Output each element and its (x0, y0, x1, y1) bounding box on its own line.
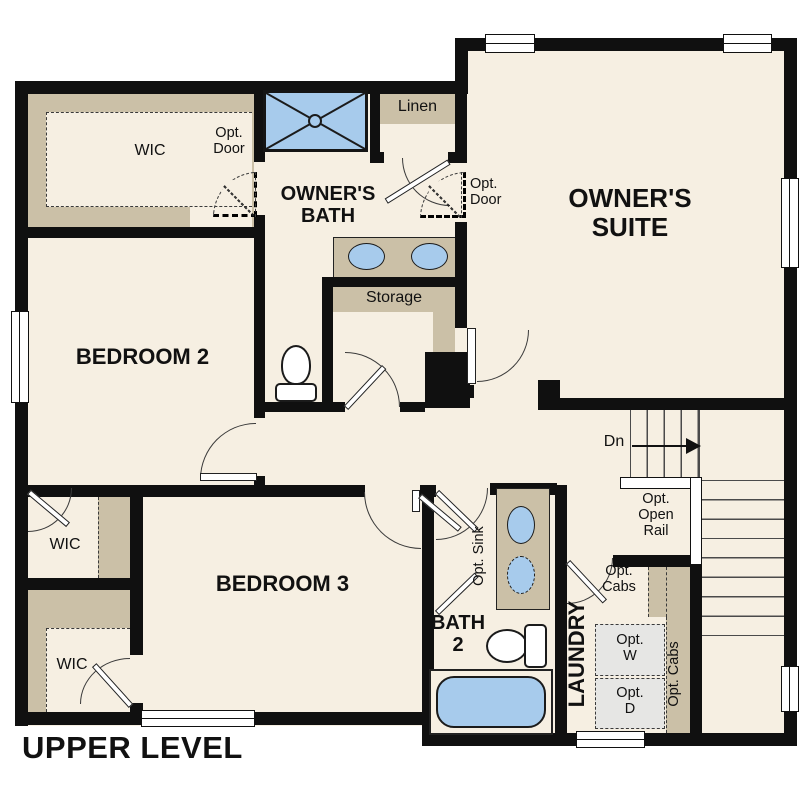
wall-wic-column-right-a (130, 485, 143, 655)
wall-vanity-bottom (322, 277, 462, 287)
wic1-label: WIC (115, 142, 185, 160)
owners-suite-label: OWNER'S SUITE (535, 184, 725, 242)
opt-cabs-vertical-text: Opt. Cabs (666, 641, 682, 706)
owners-sink-left (348, 243, 385, 270)
opt-sink-label-text: Opt. Sink (471, 526, 487, 586)
plan-title: UPPER LEVEL (22, 731, 322, 766)
wic3-shelving-top (28, 590, 130, 628)
stairs-down-label: Dn (598, 433, 630, 451)
laundry-label: LAUNDRY (565, 574, 591, 734)
window-bedroom2-left (11, 311, 29, 403)
owners-bath-line1: OWNER'S (268, 183, 388, 205)
bedroom3-label: BEDROOM 3 (185, 572, 380, 597)
chase-block (425, 352, 470, 408)
wall-bath-left-b (254, 215, 265, 238)
storage-label: Storage (336, 289, 452, 307)
opt-door2-line2: Door (470, 192, 528, 208)
wic3-label: WIC (45, 656, 99, 674)
bath2-opt-sink (507, 556, 535, 594)
shower (263, 90, 368, 152)
opt-open-rail-band-vertical (690, 477, 702, 565)
wic3-label-text: WIC (56, 656, 87, 673)
dn-label-text: Dn (604, 433, 624, 450)
bath2-label: BATH 2 (420, 612, 496, 657)
linen-label-text: Linen (398, 98, 437, 115)
owners-suite-line1: OWNER'S (535, 184, 725, 213)
storage-label-text: Storage (366, 289, 422, 306)
wall-wic2-bottom (15, 578, 143, 590)
owners-bath-label: OWNER'S BATH (268, 183, 388, 228)
bedroom2-label: BEDROOM 2 (45, 345, 240, 370)
wall-suite-bottom (540, 398, 797, 410)
opt-cabs-vertical-label: Opt. Cabs (666, 604, 690, 744)
opt-sink-label: Opt. Sink (471, 486, 495, 626)
opt-door-line2: Door (200, 141, 258, 157)
owners-sink-right (411, 243, 448, 270)
opt-d-line1: Opt. (595, 685, 665, 701)
opt-door2-line1: Opt. (470, 176, 528, 192)
window-suite-right (781, 178, 799, 268)
floor-plan-upper-level: WIC Opt. Door OWNER'S BATH Linen Opt. Do… (0, 0, 810, 810)
wic1-opt-door-leaf (255, 172, 256, 217)
wall-bedroom2-right (254, 238, 265, 418)
opt-dryer-label: Opt. D (595, 685, 665, 717)
wall-right-outer (784, 38, 797, 746)
wic2-label-text: WIC (49, 536, 80, 553)
plan-title-text: UPPER LEVEL (22, 730, 243, 765)
wall-top-left-outer (15, 81, 460, 94)
opt-w-line1: Opt. (595, 632, 665, 648)
wall-wic1-bottom (15, 227, 265, 238)
wall-suite-top-jog (455, 38, 468, 94)
wall-left-outer (15, 81, 28, 726)
window-stair-landing-right (781, 666, 799, 712)
opt-open-rail-line1: Opt. (621, 491, 691, 507)
bedroom3-door-threshold (412, 490, 420, 512)
opt-cabs-laundry-label: Opt. Cabs (590, 563, 648, 595)
wall-linen-bottom-left (370, 152, 384, 163)
bedroom2-label-text: BEDROOM 2 (76, 344, 209, 369)
wic2-label: WIC (38, 536, 92, 554)
bath2-sink (507, 506, 535, 544)
wic2-shelving (98, 497, 130, 578)
bedroom2-door-leaf (200, 473, 257, 481)
storage-shelf-strip (433, 312, 455, 352)
wall-suite-left-b (455, 222, 467, 328)
shower-glass-icon (266, 93, 365, 149)
wic2-shelf-dashed-line (98, 497, 99, 578)
owners-toilet-tank (275, 383, 317, 402)
opt-open-rail-line2: Open (621, 507, 691, 523)
stairs-direction-arrow-icon (686, 438, 701, 454)
wic3-shelving-left (28, 628, 46, 712)
opt-open-rail-label: Opt. Open Rail (621, 491, 691, 540)
window-suite-top-left (485, 34, 535, 53)
opt-open-rail-line3: Rail (621, 523, 691, 539)
bath2-toilet-tank (524, 624, 547, 668)
owners-bath-line2: BATH (268, 205, 388, 227)
bath2-line2: 2 (420, 634, 496, 656)
opt-w-line2: W (595, 648, 665, 664)
owners-toilet-bowl (281, 345, 311, 385)
opt-cabs-line1: Opt. (590, 563, 648, 579)
window-bedroom3-bottom (141, 710, 255, 727)
suite-opt-door-label: Opt. Door (470, 176, 528, 208)
laundry-label-text: LAUNDRY (564, 601, 589, 708)
opt-d-line2: D (595, 701, 665, 717)
owners-suite-line2: SUITE (535, 213, 725, 242)
opt-washer-label: Opt. W (595, 632, 665, 664)
stairs-lower-flight (702, 480, 784, 640)
stairs-direction-line (632, 445, 688, 447)
linen-label: Linen (381, 98, 454, 116)
window-suite-top-right (723, 34, 772, 53)
opt-door-line1: Opt. (200, 125, 258, 141)
wall-suite-left-a (455, 94, 467, 162)
wic1-label-text: WIC (134, 142, 165, 159)
suite-opt-door-leaf (461, 172, 462, 218)
wall-stairs-left (690, 567, 702, 733)
owners-suite-door-leaf (467, 328, 476, 384)
wall-wc-storage (322, 287, 333, 407)
wall-wc-bottom-stub (400, 402, 425, 412)
bedroom3-label-text: BEDROOM 3 (216, 571, 349, 596)
wic1-opt-door-label: Opt. Door (200, 125, 258, 157)
bath2-line1: BATH (420, 612, 496, 634)
wall-suite-step (538, 380, 560, 410)
wall-shower-linen (370, 94, 380, 158)
opt-cabs-line2: Cabs (590, 579, 648, 595)
bath2-tub (436, 676, 546, 728)
